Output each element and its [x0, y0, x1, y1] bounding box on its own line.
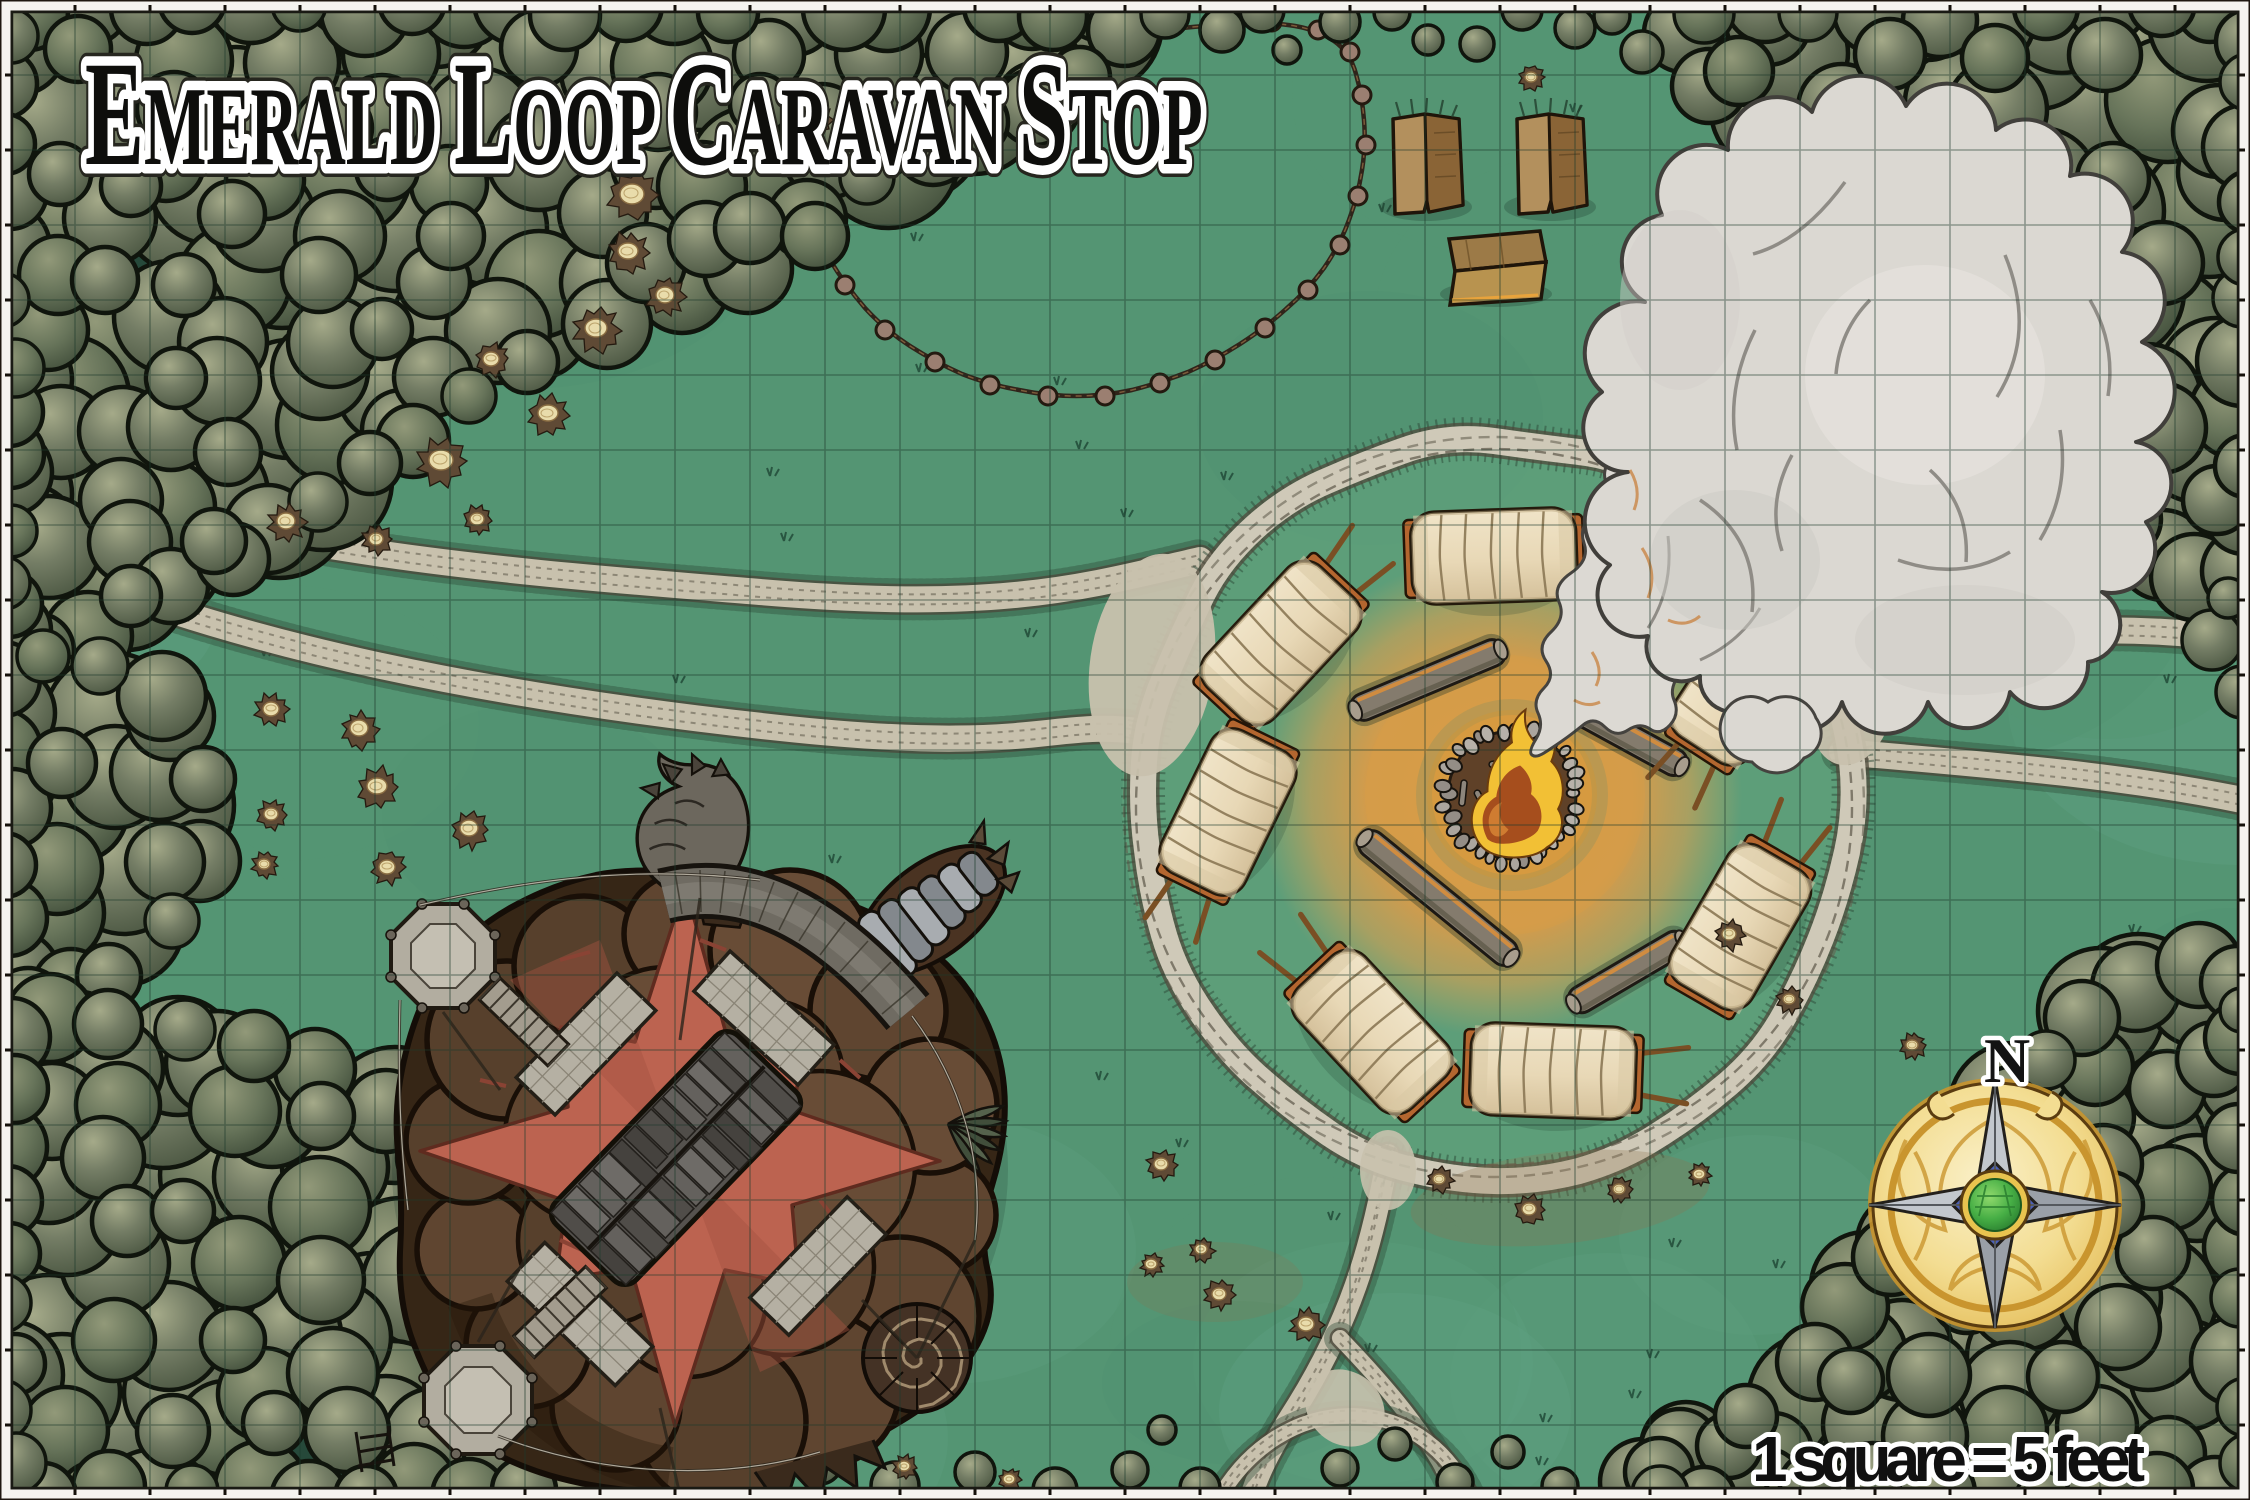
svg-text:1 square = 5 feet: 1 square = 5 feet	[1752, 1423, 2145, 1495]
svg-text:N: N	[1984, 1025, 2030, 1096]
